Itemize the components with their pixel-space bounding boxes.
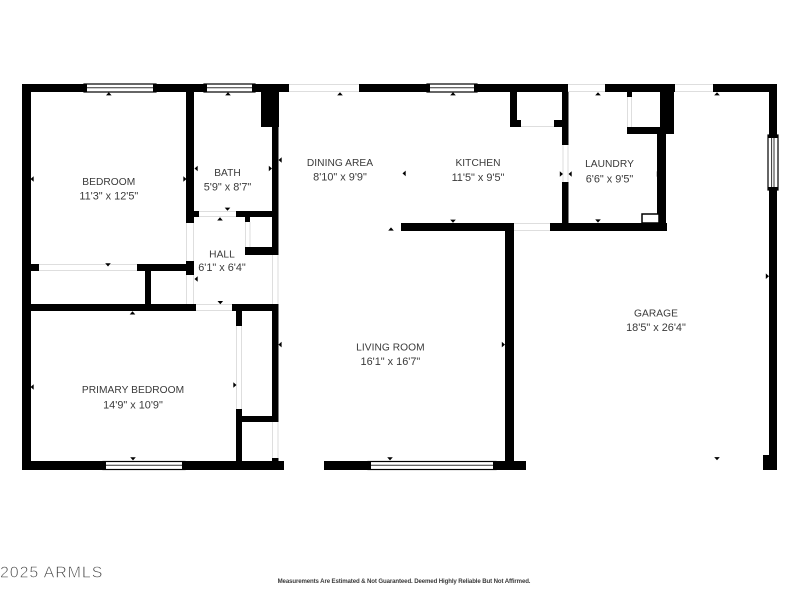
svg-text:14'9" x 10'9": 14'9" x 10'9"	[103, 400, 163, 412]
svg-text:DINING AREA: DINING AREA	[307, 158, 373, 169]
svg-text:BATH: BATH	[214, 168, 241, 179]
svg-text:BEDROOM: BEDROOM	[82, 177, 135, 188]
svg-text:GARAGE: GARAGE	[634, 308, 678, 319]
svg-text:LIVING ROOM: LIVING ROOM	[356, 343, 424, 354]
svg-text:6'1" x 6'4": 6'1" x 6'4"	[198, 262, 246, 274]
svg-text:6'6" x 9'5": 6'6" x 9'5"	[586, 174, 634, 186]
svg-text:2025 ARMLS: 2025 ARMLS	[0, 565, 103, 582]
svg-text:5'9" x 8'7": 5'9" x 8'7"	[204, 181, 252, 193]
svg-text:Measurements Are Estimated & N: Measurements Are Estimated & Not Guarant…	[278, 578, 531, 585]
svg-text:16'1" x 16'7": 16'1" x 16'7"	[361, 356, 421, 368]
svg-text:LAUNDRY: LAUNDRY	[585, 159, 634, 170]
svg-text:11'5" x 9'5": 11'5" x 9'5"	[452, 172, 505, 184]
svg-text:8'10" x 9'9": 8'10" x 9'9"	[313, 172, 367, 184]
svg-text:KITCHEN: KITCHEN	[455, 158, 500, 169]
svg-text:HALL: HALL	[209, 249, 235, 260]
svg-text:18'5" x 26'4": 18'5" x 26'4"	[626, 322, 686, 334]
svg-text:11'3" x 12'5": 11'3" x 12'5"	[79, 191, 138, 203]
svg-text:PRIMARY BEDROOM: PRIMARY BEDROOM	[82, 385, 184, 396]
